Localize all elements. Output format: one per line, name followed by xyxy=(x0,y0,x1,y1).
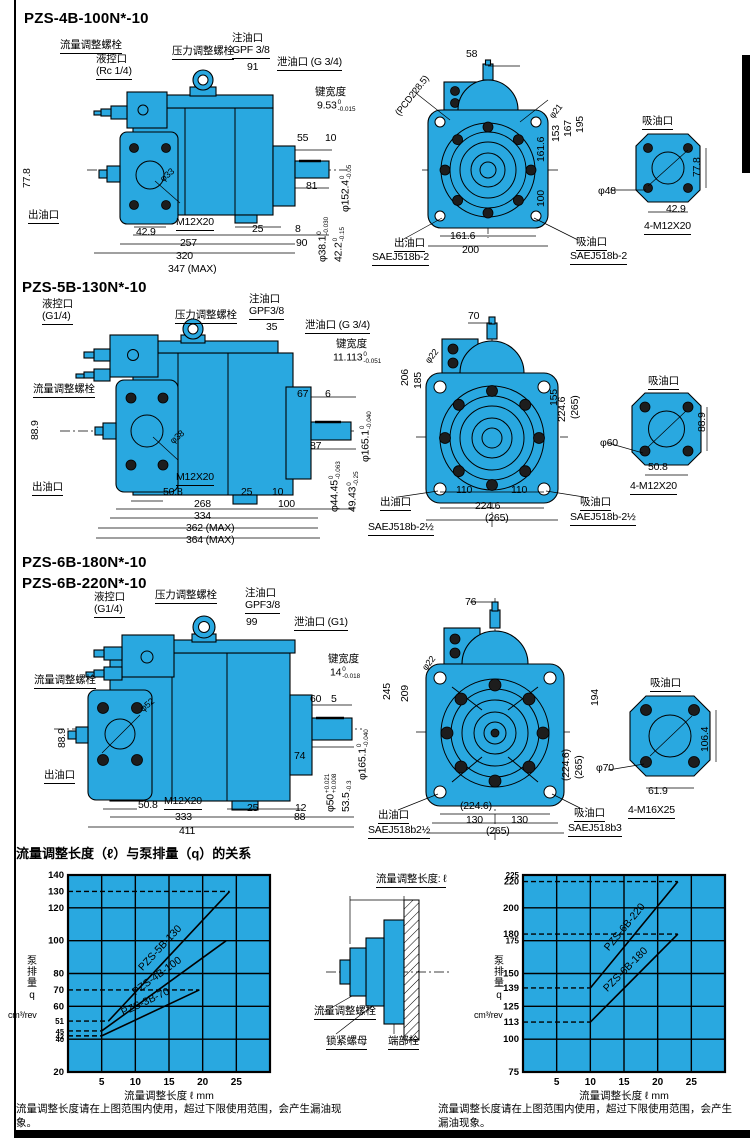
flow-adjust-length-label: 流量调整长度: ℓ xyxy=(376,874,446,888)
y-axis-unit: cm³/rev xyxy=(8,1010,37,1020)
model-title: PZS-6B-180N*-10 xyxy=(22,554,147,571)
svg-text:200: 200 xyxy=(503,903,519,914)
flow-adjust-length-diagram xyxy=(322,872,477,1062)
model-title: PZS-5B-130N*-10 xyxy=(22,279,147,296)
svg-text:220: 220 xyxy=(504,877,519,887)
dim-label: 77.8 xyxy=(692,157,704,177)
dim-label: 364 (MAX) xyxy=(186,535,234,547)
dim-label: 81 xyxy=(306,181,317,193)
flow-adjust-screw-label: 流量调整螺栓 xyxy=(34,675,96,689)
suction-port-label: 吸油口 xyxy=(580,497,611,511)
dim-label: (224.6) xyxy=(460,801,492,813)
svg-text:130: 130 xyxy=(48,886,64,897)
flow-length-displacement-chart-large-pumps: PZS-6B-220PZS-6B-18022522020018017515013… xyxy=(481,866,731,1106)
dim-label: φ38.10-0.030 xyxy=(317,217,330,262)
dim-label: (265) xyxy=(485,513,509,525)
svg-text:139: 139 xyxy=(503,983,519,994)
svg-text:40: 40 xyxy=(56,1035,64,1044)
dim-label: 194 xyxy=(590,689,602,706)
dim-label: 25 xyxy=(252,224,263,236)
dim-label: 224.6 xyxy=(475,501,500,513)
dim-label: 42.20-0.15 xyxy=(333,227,346,262)
dim-label: M12X20 xyxy=(176,217,214,231)
dim-label: 161.6 xyxy=(536,137,548,162)
dim-label: 60 xyxy=(310,694,321,706)
suction-port-label: 吸油口 xyxy=(574,808,605,822)
svg-text:10: 10 xyxy=(585,1077,597,1088)
outlet-port-label: 出油口 xyxy=(44,770,75,784)
key-width-label: 键宽度 xyxy=(315,87,346,99)
pressure-adjust-screw-label: 压力调整螺栓 xyxy=(155,590,217,604)
suction-port-label: 吸油口 xyxy=(648,376,679,390)
dim-label: 67 xyxy=(297,389,308,401)
left-page-rule xyxy=(14,0,16,1130)
flow-adjust-screw-label: 流量调整螺栓 xyxy=(33,384,95,398)
outlet-port-label: 出油口 xyxy=(28,210,59,224)
dim-label: 106.4 xyxy=(700,727,712,752)
dim-label: 268 xyxy=(194,499,211,511)
svg-text:5: 5 xyxy=(99,1077,105,1088)
y-axis-unit: cm³/rev xyxy=(474,1010,503,1020)
svg-text:流量调整长度 ℓ mm: 流量调整长度 ℓ mm xyxy=(579,1089,669,1102)
outlet-flange-std-label: SAEJ518b-2½ xyxy=(368,522,434,536)
dim-label: φ60 xyxy=(600,438,618,450)
dim-label: 8 xyxy=(295,224,301,236)
dim-label: 76 xyxy=(465,597,476,609)
key-width-label: 键宽度 xyxy=(336,339,367,351)
dim-label: 245 xyxy=(382,683,394,700)
dim-label: 224.6 xyxy=(557,397,569,422)
dim-label: (265) xyxy=(486,826,510,838)
dim-label: 74 xyxy=(294,751,305,763)
dim-label: 100 xyxy=(278,499,295,511)
dim-label: 50.8 xyxy=(648,462,668,474)
usage-note-left: 流量调整长度请在上图范围内使用，超过下限使用范围，会产生漏油现象。 xyxy=(16,1102,361,1130)
dim-label: 61.9 xyxy=(648,786,668,798)
dim-label: 77.8 xyxy=(22,168,34,188)
end-plug-label: 端部栓 xyxy=(388,1036,419,1050)
flow-adjust-screw-label: 流量调整螺栓 xyxy=(314,1006,376,1020)
model-title: PZS-4B-100N*-10 xyxy=(24,10,149,27)
fill-port-label: 注油口 GPF 3/8 xyxy=(232,33,270,59)
dim-label: 53.5-0.3 xyxy=(341,781,354,813)
page-edge-tab xyxy=(742,55,750,173)
pressure-adjust-screw-label: 压力调整螺栓 xyxy=(175,310,237,324)
dim-label: φ50+0.021+0.008 xyxy=(325,774,338,812)
dim-label: 88.9 xyxy=(697,412,709,432)
dim-label: 88.9 xyxy=(57,728,69,748)
dim-label: φ165.10-0.040 xyxy=(357,729,370,780)
pressure-adjust-screw-label: 压力调整螺栓 xyxy=(172,46,234,60)
dim-label: 320 xyxy=(176,251,193,263)
flow-adjust-screw-label: 流量调整螺栓 xyxy=(60,40,122,54)
suction-port-label: 吸油口 xyxy=(576,237,607,251)
dim-label: 10 xyxy=(272,487,283,499)
suction-flange-std-label: SAEJ518b-2½ xyxy=(570,512,636,526)
dim-label: 167 xyxy=(563,120,575,137)
outlet-port-label: 出油口 xyxy=(380,497,411,511)
dim-label: 130 xyxy=(466,815,483,827)
dim-label: (224.6) xyxy=(561,749,573,781)
usage-note-right: 流量调整长度请在上图范围内使用，超过下限使用范围，会产生漏油现象。 xyxy=(438,1102,738,1130)
dim-label: 206 xyxy=(400,369,412,386)
dim-label: 50.8 xyxy=(138,800,158,812)
model-title: PZS-6B-220N*-10 xyxy=(22,575,147,592)
svg-text:113: 113 xyxy=(504,1017,519,1028)
dim-label: 35 xyxy=(266,322,277,334)
svg-text:175: 175 xyxy=(506,937,520,946)
dim-label: 347 (MAX) xyxy=(168,264,216,276)
dim-label: 90 xyxy=(296,238,307,250)
pilot-port-label: 液控口 (G1/4) xyxy=(94,592,125,618)
svg-text:25: 25 xyxy=(686,1077,698,1088)
svg-text:5: 5 xyxy=(554,1077,560,1088)
dim-label: 195 xyxy=(575,116,587,133)
dim-label: 5 xyxy=(331,694,337,706)
dim-label: 91 xyxy=(247,62,258,74)
dim-label: 100 xyxy=(536,190,548,207)
pzs-6b-rear-view xyxy=(412,592,577,847)
dim-label: 6 xyxy=(325,389,331,401)
dim-label: 334 xyxy=(194,511,211,523)
dim-label: 87 xyxy=(310,441,321,453)
svg-text:70: 70 xyxy=(53,985,64,996)
svg-text:流量调整长度 ℓ mm: 流量调整长度 ℓ mm xyxy=(124,1089,214,1102)
catalog-page: PZS-4B-100N*-10 PZS-5B-130N*-10 PZS-6B-1… xyxy=(0,0,750,1145)
dim-label: 130 xyxy=(511,815,528,827)
dim-label: 4-M12X20 xyxy=(630,481,677,495)
dim-label: 50.8 xyxy=(163,487,183,499)
outlet-flange-std-label: SAEJ518b-2 xyxy=(372,252,429,266)
svg-text:150: 150 xyxy=(503,969,519,980)
dim-label: 110 xyxy=(456,485,472,497)
drain-port-label: 泄油口 (G 3/4) xyxy=(277,57,342,71)
dim-label: φ70 xyxy=(596,763,614,775)
dim-label: (265) xyxy=(570,395,582,419)
dim-label: 110 xyxy=(511,485,527,497)
dim-label: 161.6 xyxy=(450,231,475,243)
drain-port-label: 泄油口 (G1) xyxy=(294,617,348,631)
svg-text:100: 100 xyxy=(48,936,64,947)
svg-text:51: 51 xyxy=(55,1017,64,1026)
svg-text:10: 10 xyxy=(130,1077,142,1088)
key-width-label: 键宽度 xyxy=(328,654,359,666)
flow-length-displacement-chart-small-pumps: PZS-5B-130PZS-4B-100PZS-3B-7014013012010… xyxy=(26,866,276,1106)
dim-label: 25 xyxy=(241,487,252,499)
suction-port-label: 吸油口 xyxy=(642,116,673,130)
dim-label: (265) xyxy=(574,755,586,779)
dim-label: 333 xyxy=(175,812,192,824)
dim-label: φ44.450-0.063 xyxy=(329,461,342,512)
svg-text:125: 125 xyxy=(503,1001,520,1012)
dim-label: 88 xyxy=(294,812,305,824)
dim-label: 49.430-0.25 xyxy=(347,471,360,512)
dim-label: 42.9 xyxy=(136,227,156,239)
svg-text:140: 140 xyxy=(48,870,64,881)
svg-text:75: 75 xyxy=(508,1067,519,1078)
svg-text:20: 20 xyxy=(53,1067,64,1078)
svg-text:100: 100 xyxy=(503,1034,519,1045)
dim-label: M12X20 xyxy=(176,472,214,486)
y-axis-label: 泵 排 量 q xyxy=(27,956,37,1001)
dim-label: 200 xyxy=(462,245,479,257)
suction-port-label: 吸油口 xyxy=(650,678,681,692)
svg-text:60: 60 xyxy=(53,1001,64,1012)
dim-label: 42.9 xyxy=(666,204,686,216)
lock-nut-label: 锁紧螺母 xyxy=(326,1036,367,1050)
fill-port-label: 注油口 GPF3/8 xyxy=(245,588,280,614)
pzs-5b-suction-flange-view xyxy=(628,385,713,490)
dim-label: M12X20 xyxy=(164,796,202,810)
outlet-port-label: 出油口 xyxy=(394,238,425,252)
dim-label: 185 xyxy=(413,372,425,389)
svg-text:80: 80 xyxy=(53,969,64,980)
dim-label: φ48 xyxy=(598,186,616,198)
dim-label: 58 xyxy=(466,49,477,61)
outlet-flange-std-label: SAEJ518b2½ xyxy=(368,825,430,839)
pilot-port-label: 液控口 (G1/4) xyxy=(42,299,73,325)
suction-flange-std-label: SAEJ518b3 xyxy=(568,823,622,837)
dim-label: 88.9 xyxy=(30,420,42,440)
dim-label: 11.1130-0.051 xyxy=(333,352,381,365)
dim-label: 70 xyxy=(468,311,479,323)
dim-label: 9.530-0.015 xyxy=(317,100,356,113)
bottom-page-bar xyxy=(14,1130,750,1138)
pilot-port-label: 液控口 (Rc 1/4) xyxy=(96,54,132,80)
dim-label: 257 xyxy=(180,238,197,250)
svg-text:20: 20 xyxy=(652,1077,664,1088)
dim-label: 10 xyxy=(325,133,336,145)
svg-text:120: 120 xyxy=(48,903,64,914)
suction-flange-std-label: SAEJ518b-2 xyxy=(570,251,627,265)
dim-label: 4-M12X20 xyxy=(644,221,691,235)
pzs-6b-side-view xyxy=(52,595,367,840)
fill-port-label: 注油口 GPF3/8 xyxy=(249,294,284,320)
svg-text:25: 25 xyxy=(231,1077,243,1088)
y-axis-label: 泵 排 量 q xyxy=(494,956,504,1001)
chart-section-title: 流量调整长度（ℓ）与泵排量（q）的关系 xyxy=(16,843,251,862)
outlet-port-label: 出油口 xyxy=(32,482,63,496)
dim-label: 55 xyxy=(297,133,308,145)
svg-text:15: 15 xyxy=(618,1077,630,1088)
dim-label: 25 xyxy=(247,803,258,815)
svg-text:15: 15 xyxy=(163,1077,175,1088)
dim-label: φ152.40-0.05 xyxy=(340,165,353,212)
svg-text:20: 20 xyxy=(197,1077,209,1088)
dim-label: 362 (MAX) xyxy=(186,523,234,535)
dim-label: φ165.10-0.040 xyxy=(360,411,373,462)
dim-label: 4-M16X25 xyxy=(628,805,675,819)
drain-port-label: 泄油口 (G 3/4) xyxy=(305,320,370,334)
dim-label: 209 xyxy=(400,685,412,702)
dim-label: 411 xyxy=(179,826,195,838)
dim-label: 153 xyxy=(551,125,563,142)
outlet-port-label: 出油口 xyxy=(378,810,409,824)
dim-label: 99 xyxy=(246,617,257,629)
dim-label: 140-0.018 xyxy=(330,667,360,680)
